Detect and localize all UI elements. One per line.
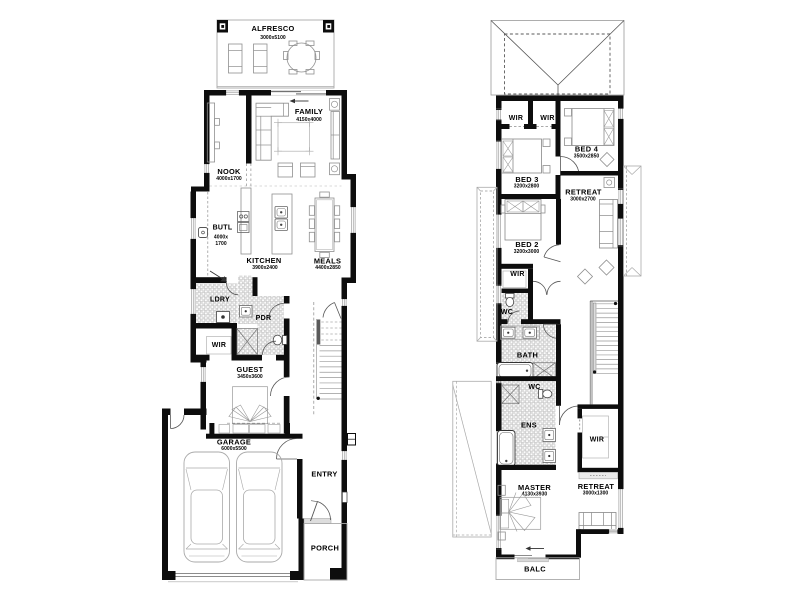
- svg-text:GUEST: GUEST: [237, 365, 264, 374]
- svg-text:PORCH: PORCH: [311, 543, 339, 552]
- svg-text:ENS: ENS: [521, 421, 537, 430]
- svg-text:4000x1700: 4000x1700: [216, 176, 242, 182]
- svg-text:LDRY: LDRY: [210, 297, 230, 304]
- svg-text:WC: WC: [501, 309, 513, 316]
- svg-text:BED 2: BED 2: [515, 240, 538, 249]
- svg-text:BALC: BALC: [524, 565, 546, 574]
- svg-text:ALFRESCO: ALFRESCO: [251, 24, 294, 33]
- svg-text:3900x2400: 3900x2400: [252, 265, 278, 271]
- svg-text:WIR: WIR: [510, 271, 525, 278]
- svg-text:4000x: 4000x: [214, 235, 228, 241]
- svg-text:3500x2850: 3500x2850: [574, 153, 600, 159]
- svg-text:1700: 1700: [215, 241, 226, 247]
- svg-text:3000x1300: 3000x1300: [583, 491, 609, 497]
- svg-text:RETREAT: RETREAT: [565, 188, 602, 197]
- svg-text:3450x3600: 3450x3600: [237, 374, 263, 380]
- svg-text:BATH: BATH: [517, 350, 538, 359]
- svg-text:WIR: WIR: [509, 115, 524, 122]
- svg-text:WIR: WIR: [540, 115, 555, 122]
- svg-text:4400x2850: 4400x2850: [315, 265, 341, 271]
- svg-text:3200x3000: 3200x3000: [514, 249, 540, 255]
- svg-text:ENTRY: ENTRY: [311, 469, 337, 478]
- svg-text:4130x3930: 4130x3930: [522, 492, 548, 498]
- svg-text:BUTL: BUTL: [213, 225, 233, 232]
- svg-text:WIR: WIR: [590, 437, 605, 444]
- svg-text:4150x4000: 4150x4000: [296, 117, 322, 123]
- svg-text:KITCHEN: KITCHEN: [247, 256, 282, 265]
- svg-text:FAMILY: FAMILY: [295, 107, 323, 116]
- svg-text:NOOK: NOOK: [217, 167, 241, 176]
- svg-text:3000x5100: 3000x5100: [260, 35, 286, 41]
- svg-text:3000x2700: 3000x2700: [570, 196, 596, 202]
- svg-text:3200x2800: 3200x2800: [514, 184, 540, 190]
- svg-text:6000x5500: 6000x5500: [221, 446, 247, 452]
- svg-text:WIR: WIR: [212, 342, 227, 349]
